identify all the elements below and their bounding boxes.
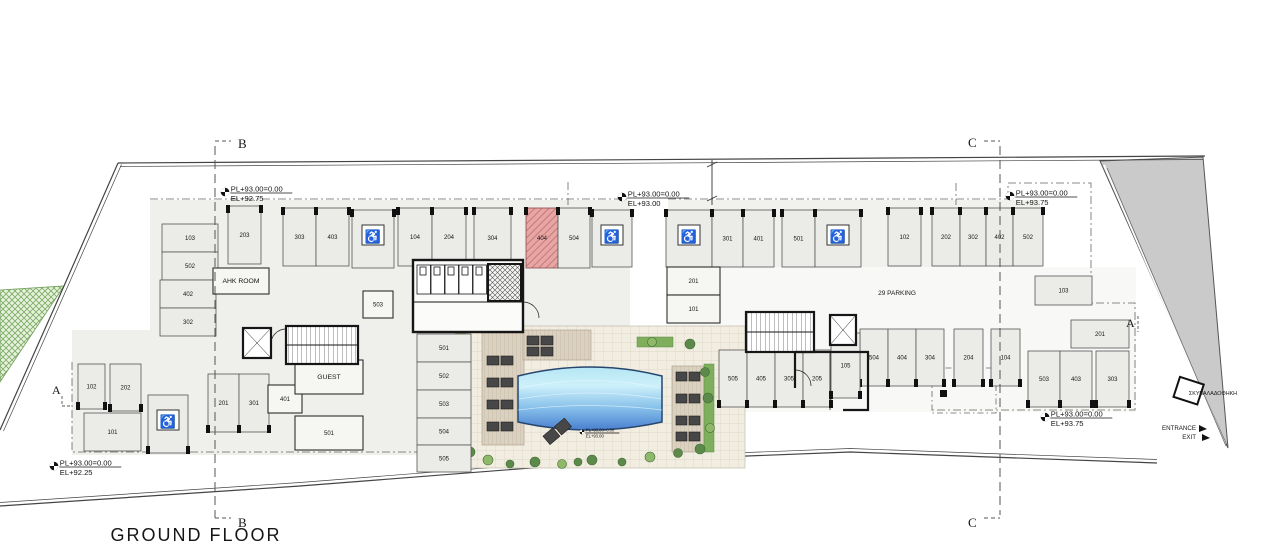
space-label: 402 [183,292,194,298]
accessible-parking-space: ♿ [664,209,714,267]
space-label: 103 [185,236,196,242]
space-label: 405 [756,377,767,383]
parking-space: 301 [710,209,745,267]
wall-stub [430,207,434,215]
space-label: 204 [444,235,455,241]
space-label: 404 [897,356,908,362]
parking-space: 504 [417,418,471,445]
section-label-c-bottom: C [968,515,977,530]
space-label: 404 [537,236,548,242]
space-label: 501 [793,237,804,243]
wall-stub [76,402,80,410]
parking-space: 503 [1026,351,1062,408]
space-label: 305 [784,377,795,383]
parking-space: 505 [417,445,471,472]
parking-space: 403 [1058,351,1094,408]
room: AHK ROOM [213,268,269,294]
space-label: 502 [185,264,196,270]
wall-stub [1018,379,1022,387]
project-level-text: PL+93.00=0.00 [1051,410,1103,419]
space-label: 302 [183,320,194,326]
space-label: 501 [439,346,450,352]
wall-stub [509,207,513,215]
space-label: 201 [1095,332,1106,338]
room: 503 [363,291,393,318]
room: 201 [667,267,720,295]
space-label: 304 [487,236,498,242]
space-label: 304 [925,356,936,362]
wall-stub [914,379,918,387]
space-label: 102 [899,235,910,241]
parking-space: 502 [162,252,218,280]
parking-space: 501 [417,334,471,362]
parking-space: 405 [745,350,777,408]
wall-stub [350,209,354,217]
space-label: 504 [569,236,580,242]
space-label: 202 [941,235,952,241]
parking-space: 302 [958,207,988,266]
parking-space: 503 [417,390,471,418]
space-label: 501 [324,431,335,437]
space-label: 103 [1058,289,1069,295]
space-label: 505 [728,377,739,383]
wall-stub [664,209,668,217]
pool-terrace [455,326,745,469]
wall-stub [981,379,985,387]
elevator-shaft-center [488,264,521,301]
parking-space: 303 [1094,351,1131,408]
elevation-text: EL+92.75 [231,194,264,203]
wall-stub [984,207,988,215]
wheelchair-icon: ♿ [681,229,697,244]
room: 101 [667,295,720,323]
project-level-text: PL+93.00=0.00 [1016,189,1068,198]
wall-stub [524,207,528,215]
space-label: 303 [294,235,305,241]
wall-stub [281,207,285,215]
space-label: 102 [86,385,97,391]
wall-stub [1127,400,1131,408]
section-label-a-left: A [52,383,61,397]
accessible-parking-space: ♿ [813,209,863,267]
wall-stub [886,379,890,387]
space-label: 503 [1039,377,1050,383]
room: GUEST [295,360,363,394]
space-label: 203 [239,233,250,239]
space-label: 505 [439,457,450,463]
elevation-text: EL+93.75 [1016,198,1049,207]
space-label: 502 [439,374,450,380]
wall-stub [958,207,962,215]
space-label: 101 [688,307,699,313]
space-label: 403 [327,235,338,241]
wall-stub [989,379,993,387]
parking-space: 301 [237,374,271,433]
parking-space: 201 [1071,320,1129,348]
wall-stub [146,446,150,454]
parking-space: 204 [952,329,985,387]
wheelchair-icon: ♿ [160,414,176,429]
parking-space: 205 [801,350,833,408]
space-label: 302 [968,235,979,241]
space-label: 504 [439,430,450,436]
highlighted-space-404: 404 [524,207,560,268]
wall-stub [710,209,714,217]
wall-stub [1090,400,1094,408]
wall-stub [259,205,263,213]
section-label-b-top: B [238,136,247,151]
parking-space: 304 [914,329,946,387]
space-label: AHK ROOM [222,278,259,285]
wheelchair-icon: ♿ [365,229,381,244]
parking-space: 305 [773,350,805,408]
wall-stub [717,400,721,408]
parking-space: 502 [417,362,471,390]
parking-space: 504 [858,329,890,387]
wall-stub [186,446,190,454]
wall-stub [472,207,476,215]
space-label: 202 [120,386,131,392]
wall-stub [741,209,745,217]
column-marker [940,390,947,397]
parking-space: 103 [162,224,218,252]
wall-stub [859,209,863,217]
space-label: 504 [869,356,880,362]
garbage-store-label: ΣΚΥΒΑΛΑΔΟΘΗΚΗ [1189,391,1237,397]
space-label: 303 [1107,377,1118,383]
wall-stub [773,400,777,408]
project-level-text: PL+93.00=0.00 [60,459,112,468]
parking-space: 202 [930,207,962,266]
parking-space: 403 [314,207,351,266]
wall-stub [1058,400,1062,408]
wall-stub [858,391,862,399]
section-label-a-right: A [1126,316,1135,330]
elevation-text: EL+93.75 [1051,419,1084,428]
wall-stub [314,207,318,215]
parking-space: 502 [1011,207,1045,266]
parking-space: 104 [396,207,434,266]
parking-space: 302 [160,308,216,336]
accessible-parking-space: ♿ [350,209,396,268]
entrance-label: ENTRANCE [1162,425,1196,432]
wall-stub [952,379,956,387]
wall-stub [1011,207,1015,215]
wall-stub [139,404,143,412]
room: 501 [295,416,363,450]
wall-stub [1041,207,1045,215]
wall-stub [630,209,634,217]
space-label: 105 [840,364,851,370]
wall-stub [392,209,396,217]
elevation-text: EL+92.25 [60,468,93,477]
space-label: 301 [722,237,733,243]
wall-stub [1094,400,1098,408]
wall-stub [556,207,560,215]
wall-stub [464,207,468,215]
space-label: 101 [107,430,118,436]
parking-space: 404 [886,329,918,387]
parking-space: 201 [206,374,241,433]
space-label: 401 [280,397,291,403]
wall-stub [801,400,805,408]
wall-stub [813,209,817,217]
wall-stub [103,402,107,410]
wall-stub [780,209,784,217]
parking-space: 103 [1035,276,1092,305]
project-level-text: PL+93.00=0.00 [628,190,680,199]
exit-label: EXIT [1182,434,1196,441]
parking-space: 102 [76,364,107,410]
parking-space: 104 [989,329,1022,387]
space-label: 301 [249,401,260,407]
wall-stub [226,205,230,213]
hedge-right [704,364,714,452]
space-label: 401 [753,237,764,243]
wall-stub [396,207,400,215]
wheelchair-icon: ♿ [604,229,620,244]
space-label: 104 [410,235,421,241]
wheelchair-icon: ♿ [830,229,846,244]
space-label: 403 [1071,377,1082,383]
parking-space: 303 [281,207,318,266]
wall-stub [237,425,241,433]
parking-space: 402 [160,280,216,308]
wall-stub [930,207,934,215]
space-label: 201 [688,279,699,285]
wall-stub [919,207,923,215]
wall-stub [1026,400,1030,408]
parking-space: 501 [780,209,817,267]
parking-space: 202 [108,364,143,412]
section-label-c-top: C [968,135,977,150]
parking-space: 204 [430,207,468,266]
wall-stub [886,207,890,215]
parking-space: 102 [886,207,923,266]
parking-space: 101 [84,413,141,451]
parking-space: 203 [226,205,263,264]
wall-stub [772,209,776,217]
parking-space: 504 [556,207,592,268]
swimming-pool [518,367,662,430]
accessible-parking-space: ♿ [590,209,634,267]
elevation-text: EL+93.00 [628,199,661,208]
wall-stub [267,425,271,433]
page-title: GROUND FLOOR [110,525,281,545]
parking-count-label: 29 PARKING [878,290,916,297]
wall-stub [108,404,112,412]
space-label: 204 [963,356,974,362]
space-label: 104 [1000,356,1011,362]
project-level-text: PL+93.00=0.00 [586,428,615,433]
wall-stub [590,209,594,217]
floor-plan-canvas: 103502402302203AHK ROOM303403♿1042043044… [0,0,1280,560]
accessible-parking-space: ♿ [146,395,190,454]
wall-stub [206,425,210,433]
parking-space: 505 [717,350,749,408]
space-label: 502 [1023,235,1034,241]
wall-stub [942,379,946,387]
space-label: 503 [439,402,450,408]
project-level-text: PL+93.00=0.00 [231,185,283,194]
space-label: GUEST [317,374,340,381]
space-label: 503 [373,303,384,309]
space-label: 205 [812,377,823,383]
wall-stub [745,400,749,408]
parking-space: 401 [741,209,776,267]
elevation-text: EL+93.00 [586,434,605,439]
space-label: 201 [218,401,229,407]
ground-floor-plan: 103502402302203AHK ROOM303403♿1042043044… [0,0,1280,560]
